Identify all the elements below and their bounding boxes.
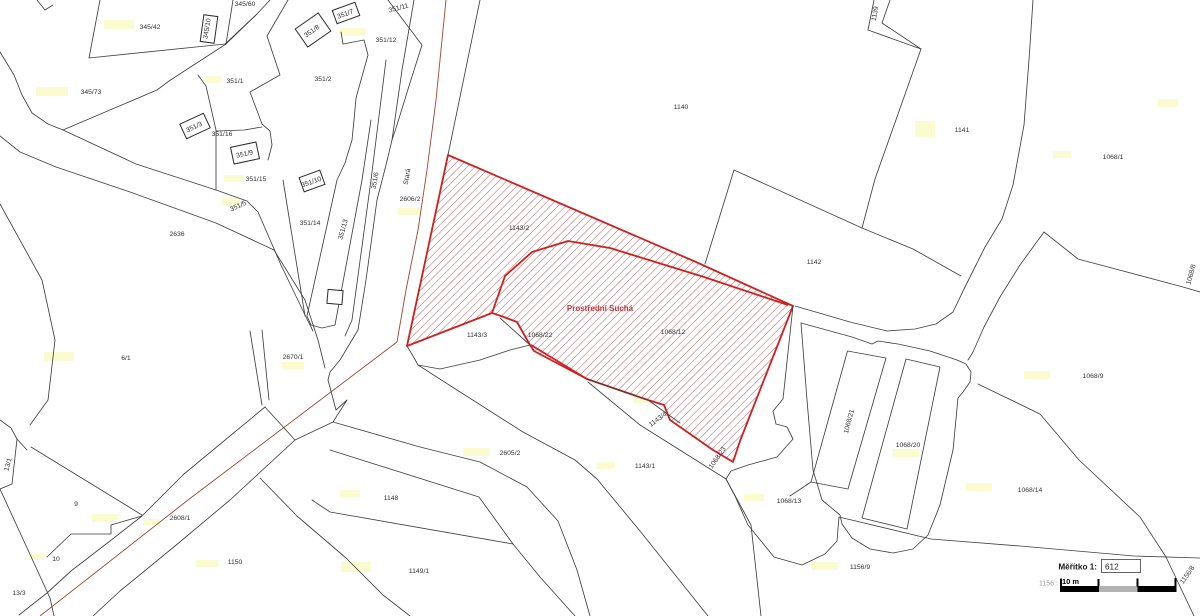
svg-text:1140: 1140 [674,104,689,111]
svg-text:13/3: 13/3 [12,590,25,597]
svg-text:1141: 1141 [955,127,970,134]
svg-text:345/73: 345/73 [81,89,102,96]
svg-text:2670/1: 2670/1 [283,354,304,361]
svg-text:Prostřední Suchá: Prostřední Suchá [567,304,634,313]
svg-text:10 m: 10 m [1062,577,1079,586]
svg-text:1150: 1150 [228,559,243,566]
svg-text:1148: 1148 [384,495,399,502]
svg-text:1068/13: 1068/13 [777,498,802,505]
svg-text:6/1: 6/1 [121,355,131,362]
svg-text:2608/1: 2608/1 [170,515,191,522]
svg-text:1068/14: 1068/14 [1018,487,1043,494]
svg-text:345/42: 345/42 [140,24,161,31]
svg-text:Měřítko 1:: Měřítko 1: [1058,563,1097,572]
svg-text:351/15: 351/15 [246,176,267,183]
svg-text:351/1: 351/1 [226,78,243,85]
svg-text:351/2: 351/2 [314,76,331,83]
svg-text:1068/20: 1068/20 [896,442,921,449]
svg-text:1142: 1142 [807,259,822,266]
svg-text:351/14: 351/14 [300,220,321,227]
svg-text:1068/1: 1068/1 [1103,154,1124,161]
svg-text:612: 612 [1105,563,1119,572]
svg-text:351/16: 351/16 [212,131,233,138]
svg-text:2636: 2636 [169,231,184,238]
svg-text:1143/2: 1143/2 [509,225,530,232]
svg-text:1156 :: 1156 : [1039,581,1058,588]
svg-text:1149/1: 1149/1 [409,568,430,575]
svg-text:9: 9 [74,501,78,508]
svg-text:1068/22: 1068/22 [528,332,553,339]
svg-text:351/12: 351/12 [376,37,397,44]
svg-text:2605/2: 2605/2 [500,450,521,457]
svg-text:1068/12: 1068/12 [661,329,686,336]
svg-text:1068/9: 1068/9 [1083,373,1104,380]
svg-text:1143/3: 1143/3 [467,332,488,339]
svg-text:10: 10 [52,556,60,563]
svg-text:1156/9: 1156/9 [850,564,871,571]
svg-text:1143/1: 1143/1 [635,463,656,470]
svg-text:345/60: 345/60 [235,1,256,8]
svg-text:2606/2: 2606/2 [400,196,421,203]
